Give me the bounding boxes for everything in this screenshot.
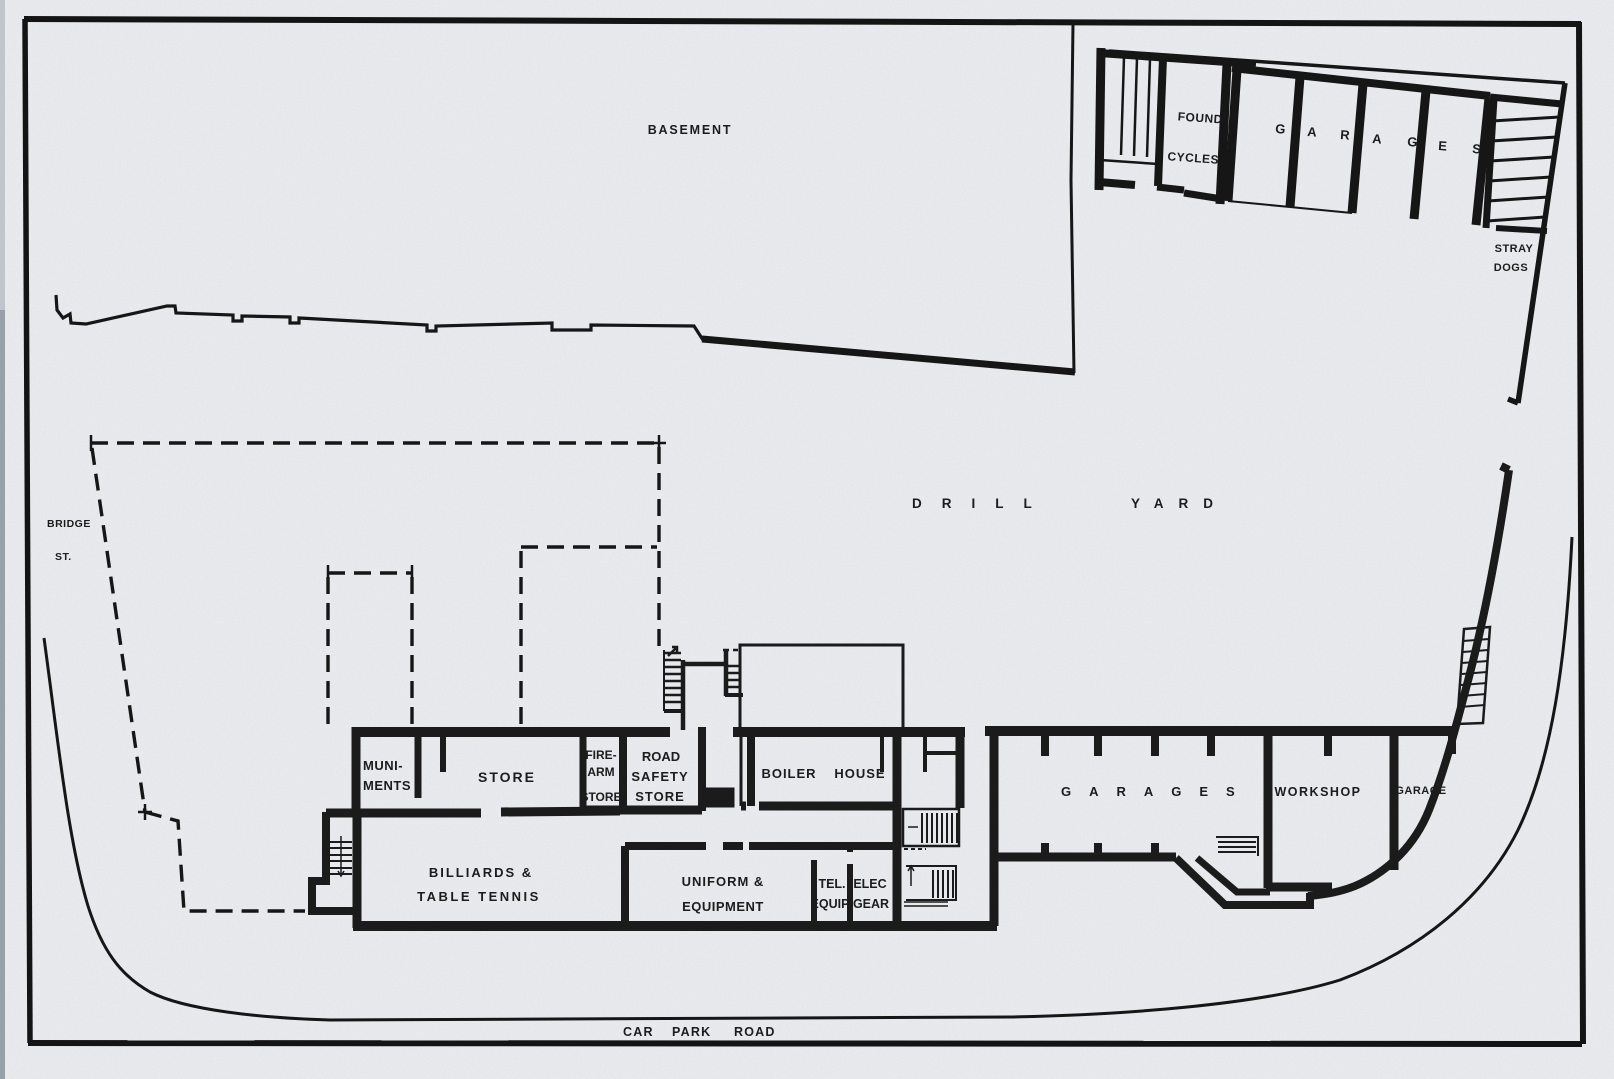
svg-text:TABLE TENNIS: TABLE TENNIS <box>417 889 541 904</box>
svg-text:ARM: ARM <box>587 765 614 779</box>
svg-text:GARAGES: GARAGES <box>1061 784 1253 799</box>
svg-text:G: G <box>1407 134 1418 150</box>
svg-text:GARAGE: GARAGE <box>1395 785 1446 797</box>
svg-text:TEL.: TEL. <box>818 877 845 891</box>
svg-text:EQUIP: EQUIP <box>811 897 850 911</box>
svg-text:FIRE-: FIRE- <box>585 748 616 762</box>
svg-text:MENTS: MENTS <box>363 778 411 793</box>
svg-text:EQUIPMENT: EQUIPMENT <box>682 899 764 914</box>
svg-text:YARD: YARD <box>1131 496 1228 511</box>
svg-text:STORE: STORE <box>635 789 685 804</box>
svg-text:R: R <box>1340 127 1351 143</box>
svg-text:A: A <box>1307 124 1318 140</box>
svg-text:MUNI-: MUNI- <box>363 758 403 773</box>
svg-text:STRAY: STRAY <box>1495 243 1534 255</box>
svg-text:S: S <box>1472 141 1482 157</box>
svg-text:ELEC: ELEC <box>853 877 886 891</box>
svg-text:BRIDGE: BRIDGE <box>47 518 91 530</box>
svg-text:BOILER: BOILER <box>761 766 816 781</box>
svg-text:ROAD: ROAD <box>734 1025 776 1039</box>
svg-text:HOUSE: HOUSE <box>834 766 885 781</box>
svg-text:CAR: CAR <box>623 1025 654 1039</box>
svg-text:BASEMENT: BASEMENT <box>648 123 733 137</box>
svg-text:ROAD: ROAD <box>642 749 680 764</box>
svg-text:ST.: ST. <box>55 551 72 563</box>
svg-text:A: A <box>1372 131 1383 147</box>
svg-text:E: E <box>1438 138 1448 154</box>
svg-text:DRILL: DRILL <box>912 496 1052 511</box>
svg-text:PARK: PARK <box>672 1025 711 1039</box>
svg-text:STORE: STORE <box>580 790 621 804</box>
svg-text:WORKSHOP: WORKSHOP <box>1275 785 1362 799</box>
svg-text:DOGS: DOGS <box>1494 262 1528 274</box>
svg-text:UNIFORM &: UNIFORM & <box>682 874 765 889</box>
svg-text:GEAR: GEAR <box>853 897 889 911</box>
svg-text:G: G <box>1275 121 1286 137</box>
svg-text:BILLIARDS &: BILLIARDS & <box>429 865 533 880</box>
svg-text:STORE: STORE <box>478 769 536 785</box>
svg-text:SAFETY: SAFETY <box>631 769 688 784</box>
